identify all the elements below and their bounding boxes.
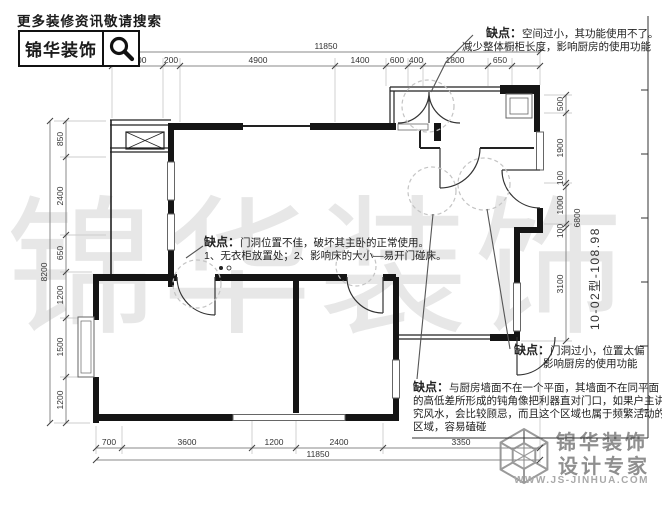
dim-label: 2400 — [330, 437, 349, 447]
callout-line: 门洞位置不佳，破坏其主卧的正常使用。 — [240, 237, 429, 249]
kitchen-double-door — [398, 92, 460, 123]
second-bedroom-door — [347, 277, 383, 313]
dim-label: 4900 — [249, 55, 268, 65]
master-bedroom-door — [177, 277, 215, 315]
dim-label: 700 — [102, 437, 116, 447]
dim-label: 1200 — [55, 390, 65, 409]
dim-right-total: 6800 — [572, 208, 582, 227]
dim-label: 1500 — [55, 337, 65, 356]
callout-text: 与厨房墙面不在一个平面，其墙面不在同平面的高低差所形成的钝角像把利器直对门口，如… — [413, 382, 662, 433]
callout-line: 门洞过小，位置太偏 — [550, 345, 645, 357]
balcony-door — [502, 170, 540, 208]
callout-label: 缺点： — [204, 235, 240, 249]
callout-line: 1、无衣柜放置处；2、影响床的大小—易开门碰床。 — [204, 250, 447, 263]
floorplan-sheet: { "header": { "tagline": "更多装修资讯敬请搜索", "… — [0, 0, 662, 508]
door-arcs — [177, 92, 555, 375]
dim-label: 3600 — [178, 437, 197, 447]
bathroom-door — [440, 148, 480, 188]
dim-label: 600 — [390, 55, 404, 65]
dim-label: 1200 — [265, 437, 284, 447]
callout-kitchen-space: 缺点：空间过小，其功能使用不了。 减少整体橱柜长度，影响厨房的使用功能 — [462, 27, 659, 54]
dim-label: 1200 — [55, 285, 65, 304]
callout-door-position: 缺点：门洞位置不佳，破坏其主卧的正常使用。 1、无衣柜放置处；2、影响床的大小—… — [204, 236, 447, 263]
dim-label: 1000 — [555, 195, 565, 214]
dim-label: 500 — [555, 97, 565, 111]
dim-bottom-total: 11850 — [306, 449, 329, 459]
dim-label: 650 — [55, 246, 65, 260]
dim-label: 3100 — [555, 274, 565, 293]
door-dots — [219, 266, 231, 270]
unit-type-label: 10-02型-108.98 — [586, 227, 603, 330]
search-icon — [102, 32, 138, 65]
header-logo-text: 锦华装饰 — [20, 32, 102, 65]
dim-label: 650 — [493, 55, 507, 65]
callout-line: 空间过小，其功能使用不了。 — [522, 28, 659, 40]
callout-wall-plane: 缺点：与厨房墙面不在一个平面，其墙面不在同平面的高低差所形成的钝角像把利器直对门… — [413, 381, 662, 434]
magnifier-icon — [107, 35, 135, 63]
issue-circles — [173, 80, 510, 308]
header-logo: 锦华装饰 — [18, 30, 140, 67]
callout-door-small: 缺点：门洞过小，位置太偏 影响厨房的使用功能 — [514, 344, 645, 371]
dim-label: 2400 — [55, 186, 65, 205]
dim-label: 1900 — [555, 138, 565, 157]
dim-label: 1400 — [351, 55, 370, 65]
header-tagline: 更多装修资讯敬请搜索 — [17, 10, 162, 30]
dim-label: 100 — [555, 224, 565, 238]
callout-line: 减少整体橱柜长度，影响厨房的使用功能 — [462, 41, 659, 54]
dim-label: 850 — [55, 132, 65, 146]
callout-label: 缺点： — [413, 380, 449, 394]
callout-label: 缺点： — [486, 26, 522, 40]
callout-line: 影响厨房的使用功能 — [543, 358, 645, 371]
dim-top-total: 11850 — [314, 41, 337, 51]
dim-left-total: 8200 — [39, 262, 49, 281]
dim-label: 400 — [409, 55, 423, 65]
dim-label: 200 — [164, 55, 178, 65]
dim-label: 100 — [555, 171, 565, 185]
callout-label: 缺点： — [514, 343, 550, 357]
